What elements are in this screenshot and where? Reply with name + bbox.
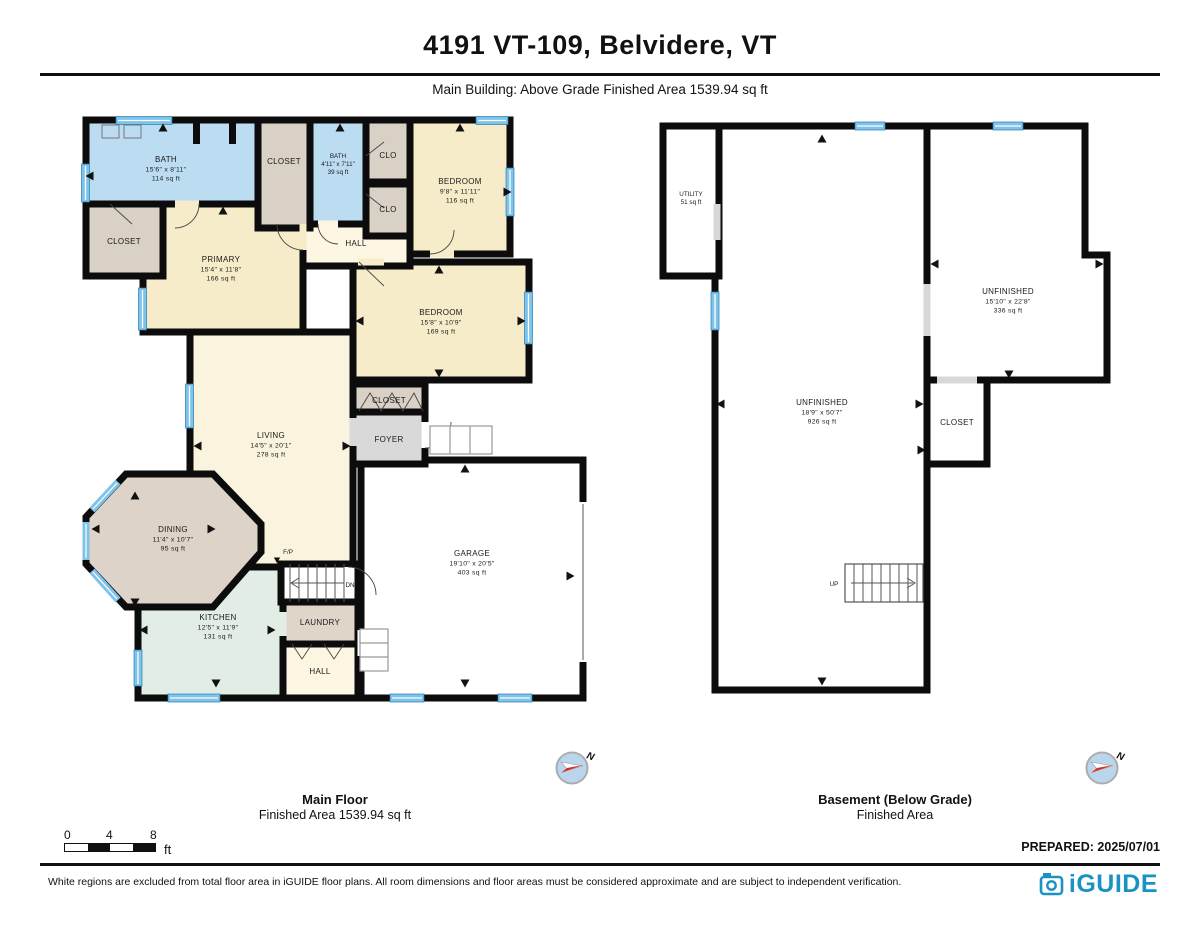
compass-main: N (552, 744, 598, 790)
main-floor-area: Finished Area 1539.94 sq ft (80, 808, 590, 824)
svg-text:CLOSET: CLOSET (940, 418, 974, 427)
footer-disclaimer: White regions are excluded from total fl… (48, 876, 948, 888)
scale-tick-0: 0 (64, 828, 71, 842)
up-label: UP (830, 581, 839, 588)
svg-text:CLO: CLO (379, 205, 396, 214)
scale-unit: ft (164, 842, 171, 857)
title-divider (40, 73, 1160, 76)
scale-bar: 0 4 8 ft (64, 828, 194, 852)
stairs-up (845, 564, 923, 602)
room-unfinished-side (927, 126, 1107, 380)
svg-text:HALL: HALL (345, 239, 366, 248)
basement-title: Basement (Below Grade) (655, 792, 1135, 808)
fireplace-label: F/P (283, 549, 293, 556)
scale-tick-8: 8 (150, 828, 157, 842)
svg-text:CLOSET: CLOSET (107, 237, 141, 246)
basement-plan: UTILITY51 sq ft UNFINISHED18'9" x 50'7"9… (655, 112, 1135, 712)
main-floor-plan: BATH15'6" x 8'11"114 sq ft CLOSET CLOSET… (78, 112, 608, 712)
basement-caption: Basement (Below Grade) Finished Area (655, 792, 1135, 824)
svg-text:LAUNDRY: LAUNDRY (300, 618, 341, 627)
compass-basement: N (1082, 744, 1128, 790)
footer-divider (40, 863, 1160, 866)
scale-tick-4: 4 (106, 828, 113, 842)
prepared-date: PREPARED: 2025/07/01 (1021, 840, 1160, 854)
svg-text:CLO: CLO (379, 151, 396, 160)
room-closet-hall (258, 120, 310, 228)
room-bedroom-front (410, 120, 510, 254)
basement-area: Finished Area (655, 808, 1135, 824)
garage-door (580, 502, 587, 662)
iguide-wordmark: iGUIDE (1069, 870, 1158, 899)
iguide-camera-icon (1038, 871, 1065, 898)
room-unfinished-main (715, 126, 927, 690)
svg-text:FOYER: FOYER (374, 435, 403, 444)
garage-steps (360, 629, 388, 671)
scale-track (64, 843, 156, 852)
main-floor-caption: Main Floor Finished Area 1539.94 sq ft (80, 792, 590, 824)
svg-text:CLOSET: CLOSET (267, 157, 301, 166)
svg-text:HALL: HALL (309, 667, 330, 676)
room-garage (361, 460, 583, 698)
iguide-logo: iGUIDE (1038, 870, 1158, 899)
svg-text:CLOSET: CLOSET (372, 396, 406, 405)
svg-text:UTILITY51 sq ft: UTILITY51 sq ft (679, 191, 703, 206)
entry-steps (430, 426, 492, 454)
dn-label: DN (345, 582, 355, 589)
page-subtitle: Main Building: Above Grade Finished Area… (0, 82, 1200, 97)
main-floor-title: Main Floor (80, 792, 590, 808)
page-title: 4191 VT-109, Belvidere, VT (0, 30, 1200, 61)
